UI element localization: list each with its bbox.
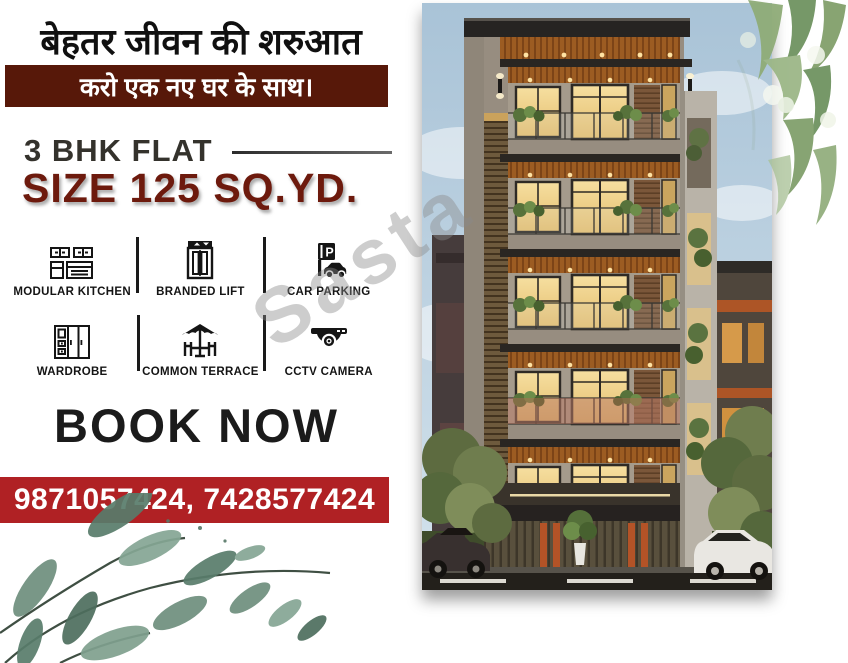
kitchen-icon: [49, 238, 95, 280]
sub-headline-banner: करो एक नए घर के साथ।: [5, 65, 388, 107]
feature-divider: [263, 237, 266, 293]
feature-label: BRANDED LIFT: [156, 286, 245, 298]
svg-text:P: P: [325, 246, 333, 260]
sub-headline-text: करो एक नए घर के साथ।: [80, 68, 313, 104]
feature-common-terrace: COMMON TERRACE: [136, 312, 264, 392]
lift-icon: [184, 238, 216, 280]
feature-wardrobe: WARDROBE: [8, 312, 136, 392]
cctv-icon: [307, 318, 351, 360]
feature-car-parking: P CAR PARKING: [265, 232, 393, 312]
feature-modular-kitchen: MODULAR KITCHEN: [8, 232, 136, 312]
book-now-text: BOOK NOW: [0, 398, 393, 453]
size-line: SIZE 125 SQ.YD.: [22, 165, 358, 212]
terrace-icon: [177, 318, 223, 360]
feature-label: CCTV CAMERA: [285, 366, 373, 378]
headline: बेहतर जीवन की शरुआत: [0, 16, 402, 65]
phone-numbers: 9871057424, 7428577424: [14, 483, 375, 517]
feature-divider: [136, 237, 139, 293]
features-row-2: WARDROBE COMMON TERRACE: [8, 312, 393, 392]
features-grid: MODULAR KITCHEN BRANDED LIFT: [8, 232, 393, 392]
feature-label: MODULAR KITCHEN: [13, 286, 131, 298]
feature-divider: [137, 315, 140, 371]
divider-rule: [232, 151, 392, 154]
feature-label: WARDROBE: [37, 366, 108, 378]
wardrobe-icon: [52, 318, 92, 360]
feature-divider: [263, 315, 266, 371]
feature-branded-lift: BRANDED LIFT: [136, 232, 264, 312]
poster-root: बेहतर जीवन की शरुआत करो एक नए घर के साथ।…: [0, 0, 848, 663]
phone-banner: 9871057424, 7428577424: [0, 477, 389, 523]
parking-icon: P: [310, 238, 348, 280]
feature-label: COMMON TERRACE: [142, 366, 259, 378]
flat-type: 3 BHK FLAT: [24, 133, 213, 169]
building-photo: [422, 3, 772, 590]
feature-label: CAR PARKING: [287, 286, 371, 298]
feature-cctv-camera: CCTV CAMERA: [265, 312, 393, 392]
features-row-1: MODULAR KITCHEN BRANDED LIFT: [8, 232, 393, 312]
